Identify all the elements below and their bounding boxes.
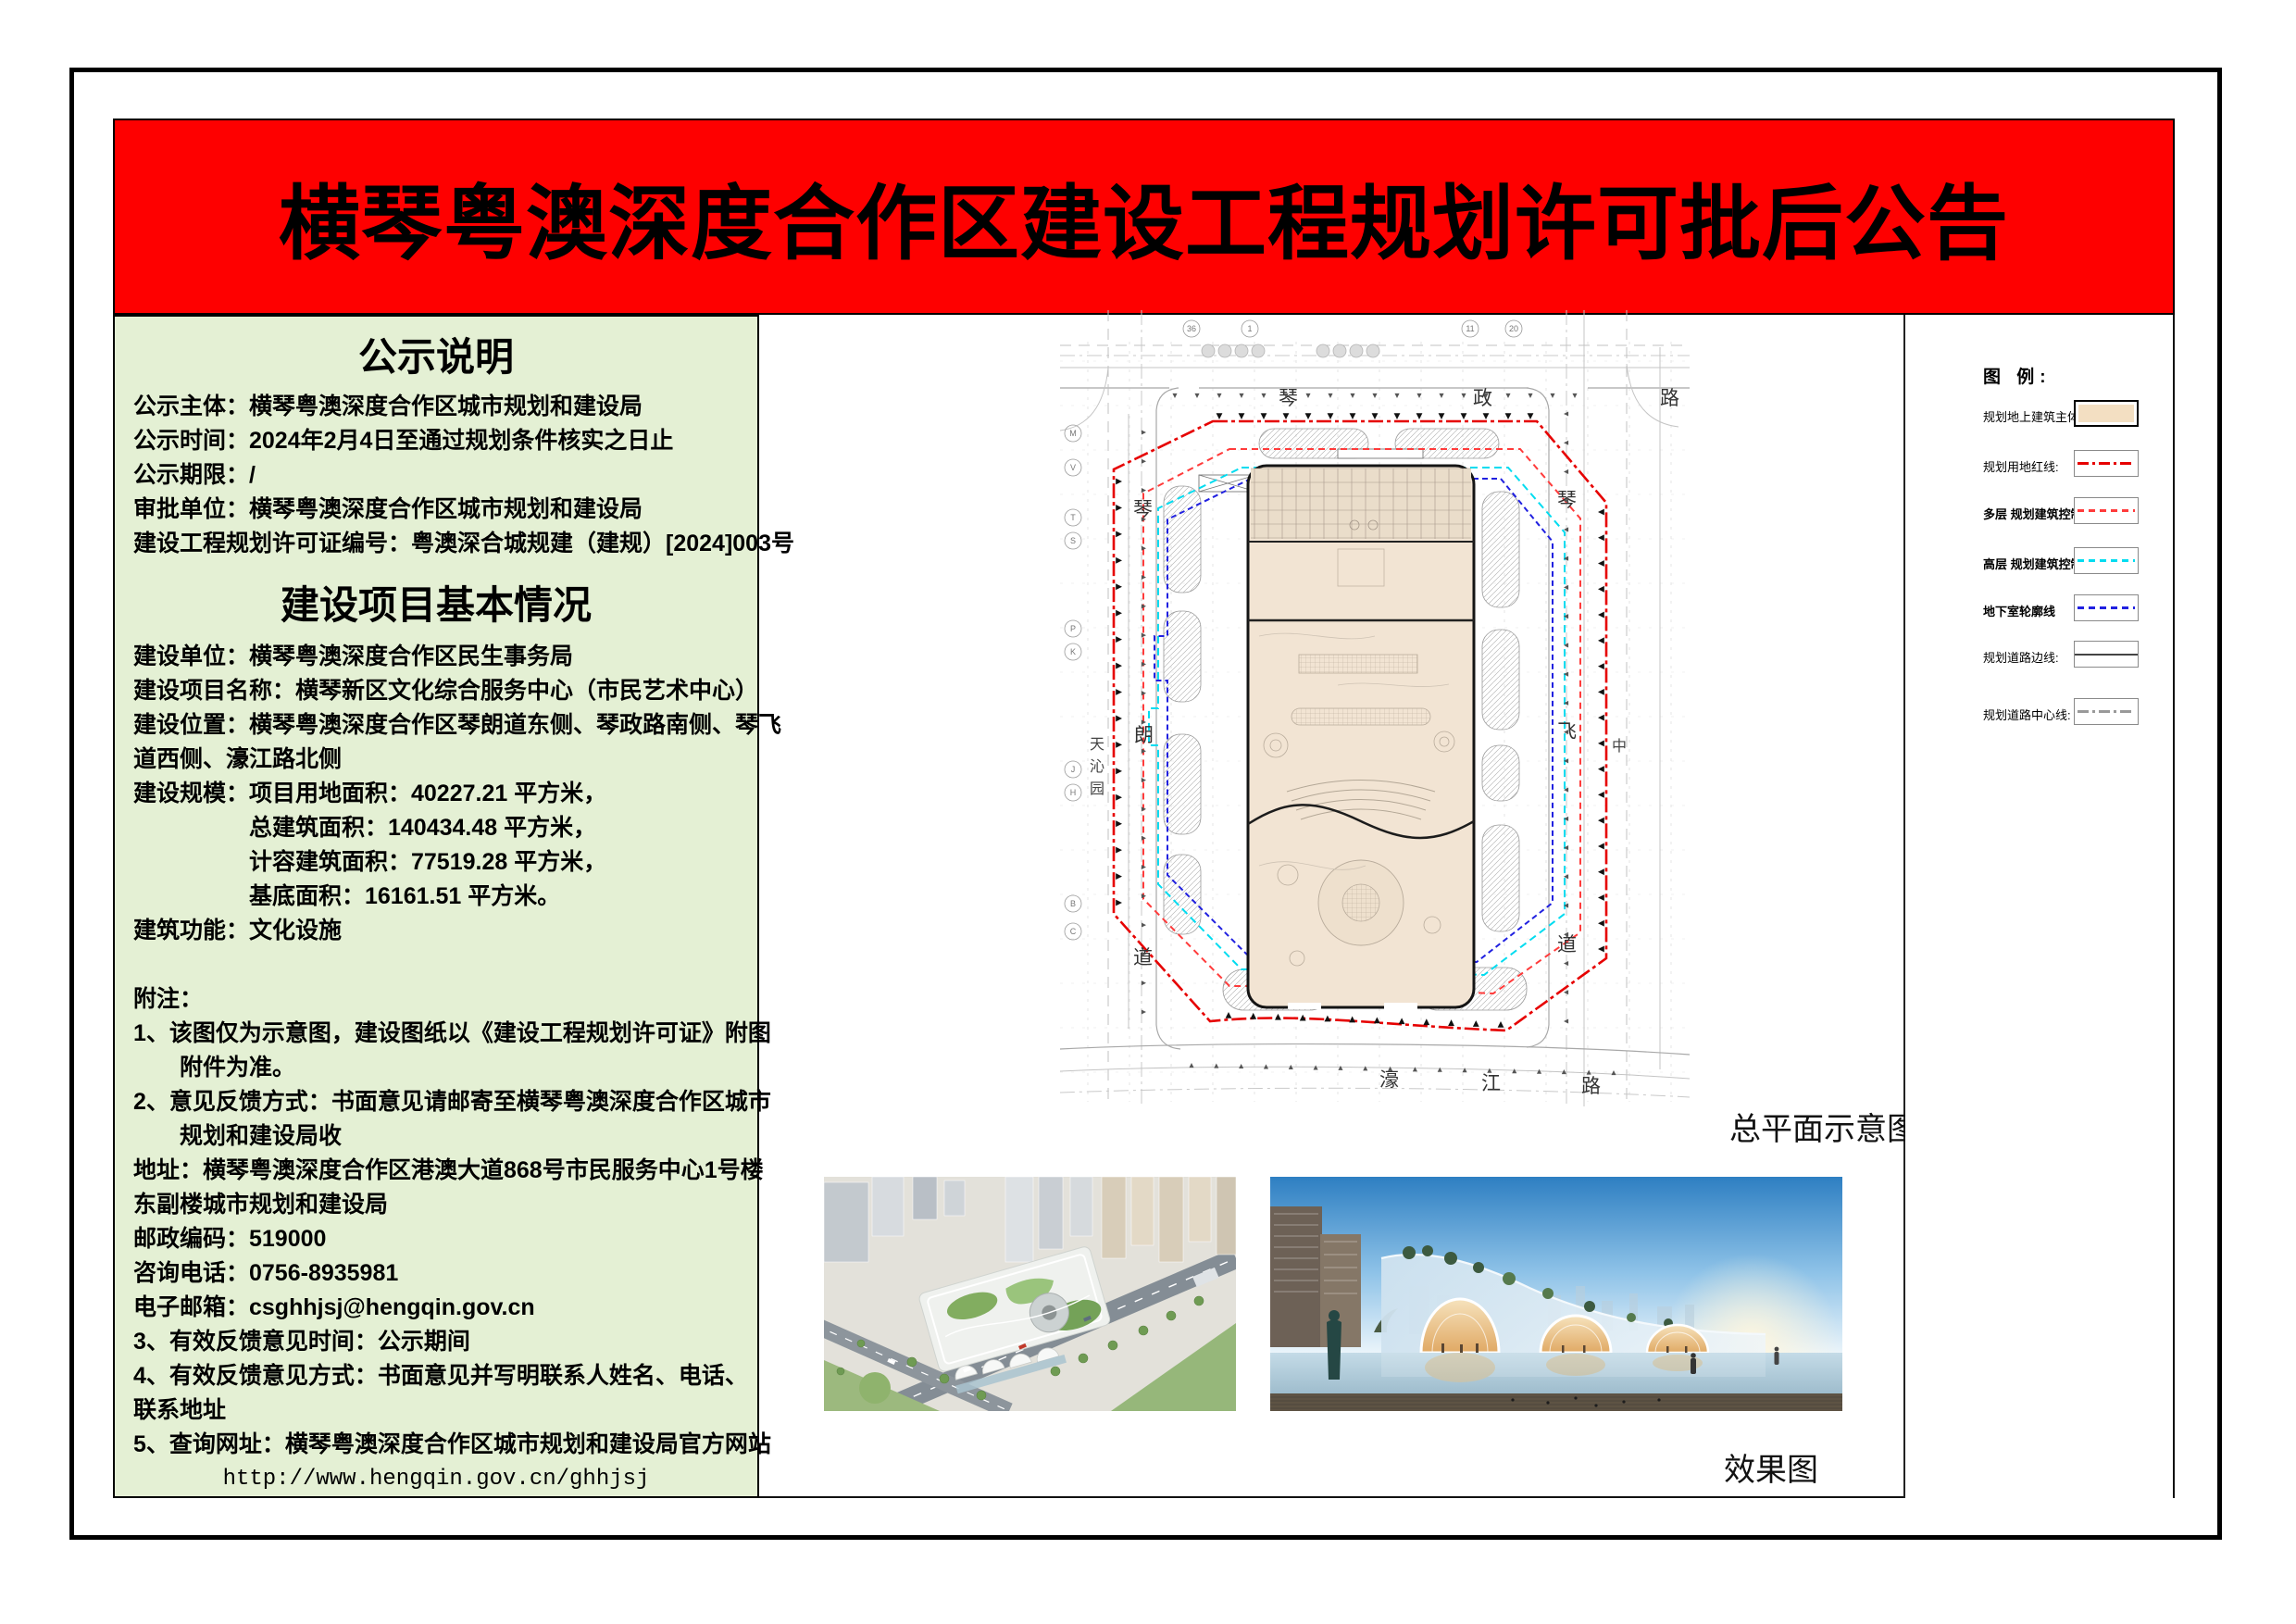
- legend-item: 规划道路边线:: [1905, 641, 2173, 668]
- legend-item-label: 地下室轮廓线: [1983, 602, 2055, 619]
- svg-text:P: P: [1070, 624, 1076, 633]
- legend-swatch-building: [2074, 400, 2139, 427]
- notice-line: 建设规模：项目用地面积：40227.21 平方米，: [133, 777, 739, 811]
- legend-item: 规划地上建筑主体:: [1905, 400, 2173, 428]
- notice-line: 建设项目名称：横琴新区文化综合服务中心（市民艺术中心）: [133, 674, 739, 708]
- road-label: 道: [1557, 934, 1577, 956]
- svg-text:11: 11: [1466, 324, 1474, 333]
- svg-text:V: V: [1070, 463, 1076, 472]
- boardwalk: [1270, 1393, 1842, 1411]
- notice-line: 5、查询网址：横琴粤澳深度合作区城市规划和建设局官方网站: [133, 1428, 739, 1462]
- legend-item-label: 规划道路边线:: [1983, 648, 2059, 666]
- svg-text:M: M: [1069, 429, 1077, 438]
- notice-line: 公示时间：2024年2月4日至通过规划条件核实之日止: [133, 424, 739, 458]
- notice-line: 附件为准。: [133, 1051, 739, 1085]
- park-label: 沁: [1090, 758, 1104, 775]
- legend-item: 地下室轮廓线: [1905, 594, 2173, 622]
- svg-text:B: B: [1070, 899, 1076, 908]
- legend-swatch-cyan-dashed: [2074, 547, 2139, 574]
- legend-item: 规划道路中心线:: [1905, 698, 2173, 726]
- notice-line: 建设工程规划许可证编号：粤澳深合城规建（建规）[2024]003号: [133, 527, 739, 561]
- notice-line: 规划和建设局收: [133, 1119, 739, 1154]
- legend-swatch-road-center: [2074, 698, 2139, 725]
- road-label: 政: [1473, 388, 1492, 409]
- notice-section2-title: 建设项目基本情况: [133, 574, 739, 631]
- notice-line: http://www.hengqin.gov.cn/ghhjsj: [133, 1462, 739, 1496]
- legend-swatch-blue-dashed: [2074, 594, 2139, 621]
- road-label: 路: [1660, 388, 1679, 409]
- road-label: 琴: [1133, 499, 1153, 520]
- park-label: 天: [1090, 737, 1104, 753]
- svg-text:C: C: [1070, 927, 1077, 936]
- road-label: 朗: [1134, 725, 1154, 746]
- notice-line: 1、该图仅为示意图，建设图纸以《建设工程规划许可证》附图: [133, 1017, 739, 1051]
- title-banner: 横琴粤澳深度合作区建设工程规划许可批后公告: [113, 119, 2175, 315]
- road-label: 濠: [1379, 1069, 1399, 1091]
- legend-item: 多层 规划建筑控制线: [1905, 497, 2173, 525]
- park-label: 园: [1090, 781, 1104, 797]
- render-aerial-view: [824, 1177, 1236, 1411]
- notice-line: 地址：横琴粤澳深度合作区港澳大道868号市民服务中心1号楼: [133, 1154, 739, 1188]
- notice-line: 公示主体：横琴粤澳深度合作区城市规划和建设局: [133, 390, 739, 424]
- legend-swatch-road-edge: [2074, 641, 2139, 668]
- svg-text:J: J: [1071, 765, 1076, 774]
- road-label: 道: [1133, 947, 1153, 968]
- street-trees: [1202, 344, 1379, 357]
- notice-line: 计容建筑面积：77519.28 平方米，: [133, 845, 739, 880]
- notice-line: 基底面积：16161.51 平方米。: [133, 880, 739, 914]
- legend-item: 规划用地红线:: [1905, 450, 2173, 478]
- legend-item-label: 规划用地红线:: [1983, 457, 2059, 475]
- legend-swatch-red-dashdot: [2074, 450, 2139, 477]
- notice-line: 道西侧、濠江路北侧: [133, 743, 739, 777]
- site-plan-caption: 总平面示意图: [1729, 1104, 1918, 1149]
- notice-line: 总建筑面积：140434.48 平方米，: [133, 811, 739, 845]
- notice-poster-page: { "banner": { "title": "横琴粤澳深度合作区建设工程规划许…: [0, 0, 2296, 1624]
- road-label: 中: [1612, 738, 1627, 755]
- svg-text:T: T: [1070, 513, 1076, 522]
- legend-item-label: 规划地上建筑主体:: [1983, 407, 2083, 425]
- notice-line: 联系地址: [133, 1393, 739, 1428]
- notice-line: 3、有效反馈意见时间：公示期间: [133, 1325, 739, 1359]
- notice-line: 建设位置：横琴粤澳深度合作区琴朗道东侧、琴政路南侧、琴飞: [133, 708, 739, 743]
- notice-section2-body: 建设单位：横琴粤澳深度合作区民生事务局建设项目名称：横琴新区文化综合服务中心（市…: [133, 640, 739, 1496]
- notice-section1-title: 公示说明: [133, 326, 739, 382]
- svg-text:K: K: [1070, 647, 1076, 656]
- notice-line: 建筑功能：文化设施: [133, 914, 739, 948]
- svg-text:1: 1: [1247, 324, 1252, 333]
- svg-text:H: H: [1070, 788, 1077, 797]
- legend-swatch-red-dashed: [2074, 497, 2139, 524]
- legend-panel: 图 例: 规划地上建筑主体:规划用地红线:多层 规划建筑控制线高层 规划建筑控制…: [1905, 315, 2173, 1498]
- notice-line: 邮政编码：519000: [133, 1222, 739, 1256]
- notice-section1-body: 公示主体：横琴粤澳深度合作区城市规划和建设局公示时间：2024年2月4日至通过规…: [133, 390, 739, 561]
- svg-text:36: 36: [1187, 324, 1196, 333]
- notice-line: 审批单位：横琴粤澳深度合作区城市规划和建设局: [133, 493, 739, 527]
- notice-line: 附注：: [133, 982, 739, 1017]
- road-label: 江: [1481, 1073, 1501, 1094]
- site-plan-drawing: 琴 政 路 濠 江 路 琴 朗 道 琴 飞 道 天 沁 园 中 MVTSPKJH…: [1060, 310, 1690, 1106]
- page-title: 横琴粤澳深度合作区建设工程规划许可批后公告: [279, 158, 2009, 276]
- render-waterfront-view: [1270, 1177, 1842, 1411]
- notice-line: 建设单位：横琴粤澳深度合作区民生事务局: [133, 640, 739, 674]
- notice-line: 咨询电话：0756-8935981: [133, 1256, 739, 1291]
- legend-item: 高层 规划建筑控制线: [1905, 547, 2173, 575]
- render-caption: 效果图: [1724, 1444, 1818, 1490]
- notice-line: [133, 948, 739, 982]
- notice-line: 公示期限：/: [133, 458, 739, 493]
- notice-line: 电子邮箱：csghhjsj@hengqin.gov.cn: [133, 1291, 739, 1325]
- road-label: 琴: [1279, 388, 1298, 409]
- road-label: 路: [1581, 1076, 1601, 1097]
- building-footprint: [1248, 466, 1474, 1009]
- svg-text:S: S: [1070, 536, 1076, 545]
- notice-line: 2、意见反馈方式：书面意见请邮寄至横琴粤澳深度合作区城市: [133, 1085, 739, 1119]
- legend-item-label: 规划道路中心线:: [1983, 706, 2071, 723]
- legend-title: 图 例:: [1983, 363, 2052, 388]
- notice-line: 4、有效反馈意见方式：书面意见并写明联系人姓名、电话、: [133, 1359, 739, 1393]
- notice-line: 东副楼城市规划和建设局: [133, 1188, 739, 1222]
- notice-panel: 公示说明 公示主体：横琴粤澳深度合作区城市规划和建设局公示时间：2024年2月4…: [113, 315, 759, 1498]
- svg-text:20: 20: [1509, 324, 1518, 333]
